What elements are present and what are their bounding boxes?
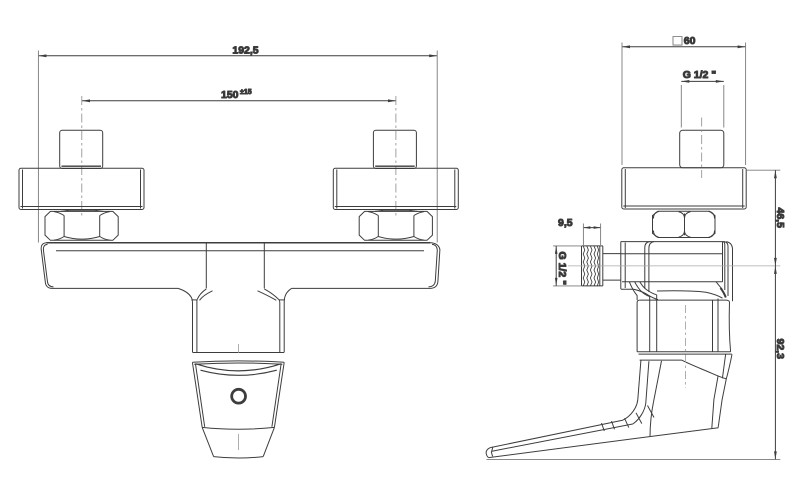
svg-text:46,5: 46,5 xyxy=(774,208,786,229)
svg-text:9,5: 9,5 xyxy=(558,217,573,229)
svg-text:G 1/2 ": G 1/2 " xyxy=(683,69,717,81)
svg-text:150: 150 xyxy=(221,89,239,101)
svg-text:G 1/2 ": G 1/2 " xyxy=(556,252,568,286)
svg-text:60: 60 xyxy=(684,35,696,47)
svg-text:92,3: 92,3 xyxy=(774,339,786,360)
svg-text:±15: ±15 xyxy=(240,89,252,96)
svg-text:192,5: 192,5 xyxy=(232,44,258,56)
